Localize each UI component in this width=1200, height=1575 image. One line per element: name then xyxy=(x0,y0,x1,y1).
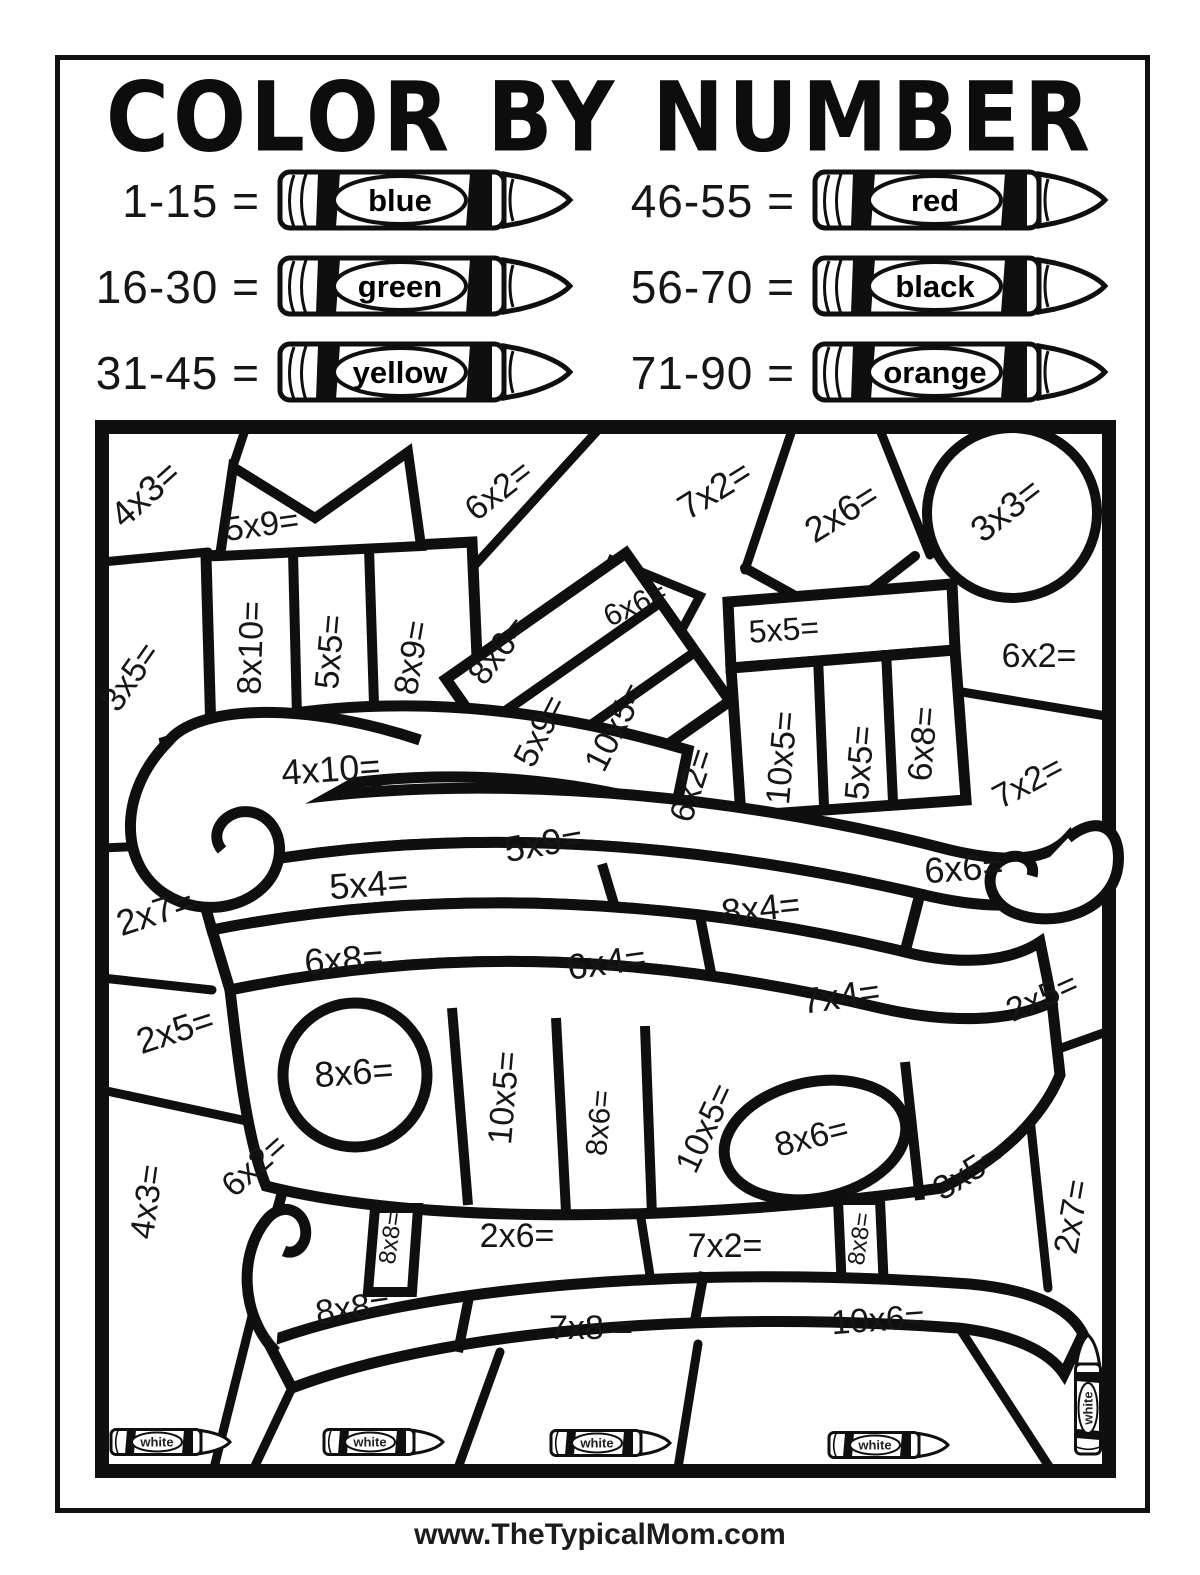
white-crayon-icon: white xyxy=(111,1430,230,1455)
math-expression: 2x6= xyxy=(480,1217,555,1255)
worksheet-page: COLOR BY NUMBER xyxy=(0,0,1200,1575)
white-crayon-label: white xyxy=(1081,1391,1096,1425)
coloring-area: 4x3=5x9=6x2=7x2=2x6=3x3=3x5=8x10=5x5=8x9… xyxy=(0,0,1200,1575)
white-crayon-label: white xyxy=(579,1436,613,1451)
math-expression: 6x8= xyxy=(901,705,945,783)
math-expression: 10x5= xyxy=(759,710,805,807)
math-expression: 10x6= xyxy=(830,1298,926,1342)
math-expression: 8x10= xyxy=(230,600,271,695)
math-expression: 7x2= xyxy=(688,1227,763,1265)
white-crayon-icon: white xyxy=(1076,1335,1101,1454)
white-crayon-label: white xyxy=(352,1435,386,1450)
math-expression: 6x2= xyxy=(1002,637,1077,675)
white-crayon-icon: white xyxy=(324,1430,443,1455)
math-expression: 4x10= xyxy=(280,745,382,793)
white-crayon-icon: white xyxy=(829,1433,948,1458)
math-expression: 10x5= xyxy=(481,1050,527,1147)
math-expression: 5x5= xyxy=(838,724,882,802)
math-expression: 8x6= xyxy=(580,1089,619,1158)
white-crayon-label: white xyxy=(139,1435,173,1450)
math-expression: 5x5= xyxy=(308,613,352,691)
math-expression: 5x4= xyxy=(328,861,410,907)
math-expression: 5x5= xyxy=(748,609,821,650)
white-crayon-icon: white xyxy=(551,1431,670,1456)
white-crayon-label: white xyxy=(857,1438,891,1453)
footer-url: www.TheTypicalMom.com xyxy=(0,1518,1200,1552)
math-expression: 6x8= xyxy=(303,936,385,982)
math-expression: 6x6= xyxy=(923,845,1005,891)
math-expression: 8x4= xyxy=(719,884,802,933)
math-expression: 7x8 = xyxy=(549,1309,633,1347)
math-expression: 8x6= xyxy=(313,1049,395,1095)
